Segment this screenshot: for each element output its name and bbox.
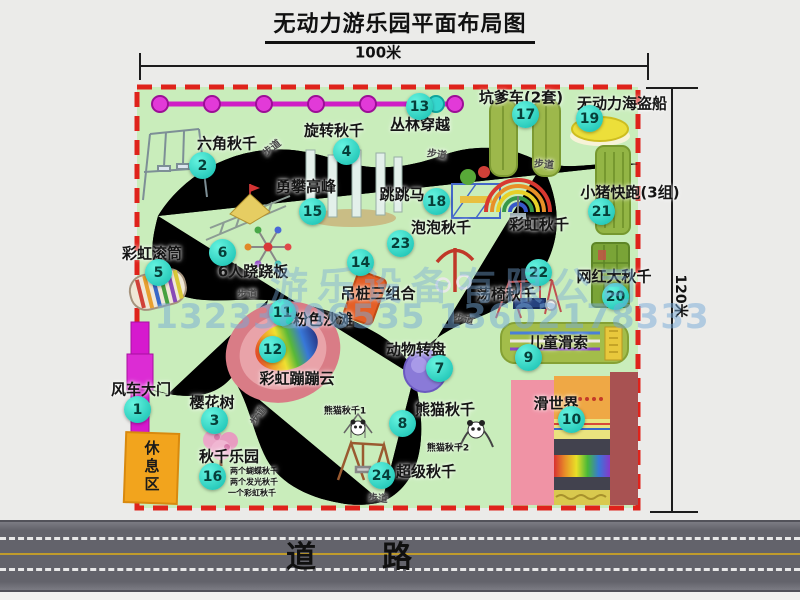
- attraction-label-14: 吊桩三组合: [340, 283, 415, 304]
- attraction-marker-8: 8: [389, 410, 416, 437]
- attraction-marker-11: 11: [269, 299, 296, 326]
- attraction-marker-19: 19: [576, 105, 603, 132]
- attraction-label-8: 熊猫秋千: [415, 399, 475, 420]
- map-label-4: 两个发光秋千: [230, 477, 278, 488]
- walkway-label-6: 步道: [368, 489, 389, 505]
- attraction-label-12: 彩虹蹦蹦云: [259, 368, 334, 389]
- map-label-1: 熊猫秋千1: [324, 404, 366, 417]
- attraction-markers-layer: 风车大门1六角秋千2樱花树3旋转秋千4彩虹滚筒56人跷跷板6动物转盘7熊猫秋千8…: [0, 0, 800, 600]
- walkway-label-1: 步道: [426, 144, 448, 162]
- attraction-label-23: 泡泡秋千: [411, 217, 471, 238]
- walkway-label-0: 步道: [259, 135, 284, 159]
- attraction-label-18: 跳跳马: [379, 184, 424, 205]
- attraction-marker-9: 9: [515, 344, 542, 371]
- attraction-marker-7: 7: [426, 355, 453, 382]
- attraction-marker-23: 23: [387, 230, 414, 257]
- attraction-marker-13: 13: [406, 93, 433, 120]
- attraction-marker-22: 22: [525, 259, 552, 286]
- attraction-label-24: 超级秋千: [396, 461, 456, 482]
- park-map-canvas: 无动力游乐园平面布局图: [0, 0, 800, 600]
- attraction-marker-20: 20: [602, 283, 629, 310]
- attraction-marker-1: 1: [124, 396, 151, 423]
- attraction-label-11: 粉色沙滩: [293, 309, 353, 330]
- attraction-marker-4: 4: [333, 138, 360, 165]
- attraction-marker-3: 3: [201, 407, 228, 434]
- attraction-label-15: 勇攀高峰: [276, 176, 336, 197]
- walkway-label-3: 步道: [237, 286, 257, 301]
- walkway-label-5: 步道: [245, 403, 269, 428]
- attraction-label-4: 旋转秋千: [304, 120, 364, 141]
- attraction-marker-14: 14: [347, 249, 374, 276]
- walkway-label-2: 步道: [533, 155, 554, 172]
- map-label-5: 一个彩虹秋千: [228, 488, 276, 499]
- attraction-marker-6: 6: [209, 239, 236, 266]
- attraction-marker-12: 12: [259, 336, 286, 363]
- map-label-0: 彩虹秋千: [509, 214, 569, 235]
- attraction-marker-5: 5: [145, 259, 172, 286]
- attraction-label-22: 荡椅秋千: [476, 284, 536, 305]
- attraction-marker-15: 15: [299, 198, 326, 225]
- map-label-3: 两个蝴蝶秋千: [230, 466, 278, 477]
- attraction-label-2: 六角秋千: [197, 133, 257, 154]
- attraction-marker-21: 21: [588, 198, 615, 225]
- map-label-2: 熊猫秋千2: [427, 441, 469, 454]
- rest-area-label: 休息区: [142, 440, 163, 494]
- walkway-label-4: 步道: [453, 309, 476, 328]
- attraction-marker-16: 16: [199, 463, 226, 490]
- attraction-marker-2: 2: [189, 152, 216, 179]
- attraction-marker-10: 10: [558, 406, 585, 433]
- attraction-marker-17: 17: [512, 101, 539, 128]
- attraction-marker-24: 24: [368, 462, 395, 489]
- attraction-marker-18: 18: [423, 188, 450, 215]
